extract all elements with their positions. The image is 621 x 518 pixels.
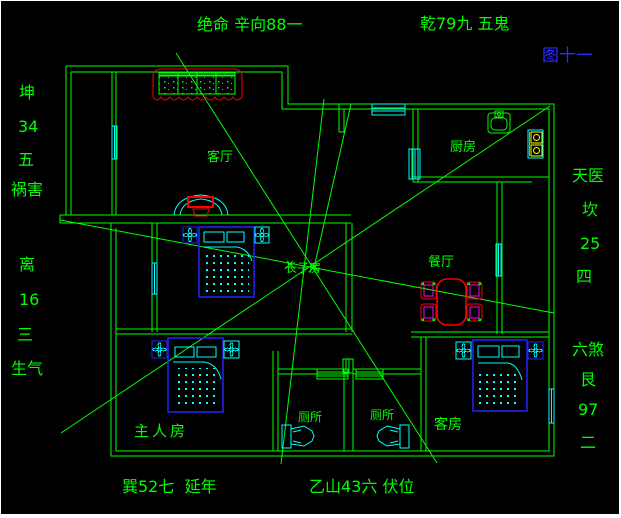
annotation-16: 16 xyxy=(19,292,39,308)
annotation-wu: 五 xyxy=(18,152,34,168)
dining-chair xyxy=(467,304,482,321)
nightstand-lamp xyxy=(255,227,269,243)
dining-chair xyxy=(421,304,436,321)
nightstand-lamp xyxy=(456,342,471,359)
annotation-san: 三 xyxy=(17,327,33,343)
annotation-bottom-left: 巽52七 延年 xyxy=(122,479,217,495)
nightstand-lamp xyxy=(528,342,543,359)
guest-right-window xyxy=(549,389,554,423)
label-dining-room: 餐厅 xyxy=(428,254,454,270)
annotation-top-left: 绝命 辛向88一 xyxy=(197,17,302,33)
annotation-shengqi: 生气 xyxy=(11,361,43,377)
bedroom-door xyxy=(152,263,157,294)
bed-guest xyxy=(473,340,527,411)
nightstand-lamp xyxy=(183,227,197,243)
annotation-34: 34 xyxy=(18,119,38,135)
annotation-gen: 艮 xyxy=(580,372,596,388)
label-toilet-left: 厕所 xyxy=(298,410,322,424)
sofa xyxy=(153,69,242,100)
dining-set xyxy=(421,279,482,325)
annotation-tianyi: 天医 xyxy=(572,168,604,184)
annotation-liusha: 六煞 xyxy=(572,342,604,358)
annotation-li: 离 xyxy=(19,257,35,273)
kitchen-left-window xyxy=(409,149,420,179)
annotation-kun: 坤 xyxy=(19,85,35,101)
annotation-top-right: 乾79九 五鬼 xyxy=(420,16,509,32)
label-toilet-right: 厕所 xyxy=(370,408,394,422)
stove xyxy=(528,130,543,158)
tv xyxy=(174,195,228,216)
label-eldest-son: 长子房 xyxy=(285,260,321,275)
annotation-er: 二 xyxy=(580,435,596,451)
figure-number-label: 图十一 xyxy=(542,48,593,65)
toilet-fixture-left xyxy=(282,425,314,448)
bed-master xyxy=(168,338,223,412)
annotation-huohai: 祸害 xyxy=(11,182,43,198)
nightstand-lamp xyxy=(224,341,239,358)
annotation-kan: 坎 xyxy=(582,202,598,218)
floor-plan-canvas: 客厅 厨房 餐厅 长子房 主人房 厕所 厕所 客房 xyxy=(1,1,621,518)
annotation-si: 四 xyxy=(576,269,592,285)
label-living-room: 客厅 xyxy=(207,149,233,165)
annotation-97: 97 xyxy=(578,402,598,418)
dining-chair xyxy=(467,282,482,299)
dining-table xyxy=(437,279,466,325)
label-guest-room: 客房 xyxy=(434,416,462,433)
toilet-fixture-right xyxy=(377,425,409,448)
nightstand-lamp xyxy=(152,341,167,358)
annotation-25: 25 xyxy=(580,236,600,252)
bed-eldest-son xyxy=(199,227,254,297)
label-master: 主人房 xyxy=(134,422,188,440)
kitchen-sink xyxy=(488,111,510,133)
label-kitchen: 厨房 xyxy=(450,139,476,155)
annotation-bottom-right: 乙山43六 伏位 xyxy=(309,479,414,495)
floor-plan-screenshot: 客厅 厨房 餐厅 长子房 主人房 厕所 厕所 客房 绝命 辛向88一 乾79九 … xyxy=(0,0,621,518)
